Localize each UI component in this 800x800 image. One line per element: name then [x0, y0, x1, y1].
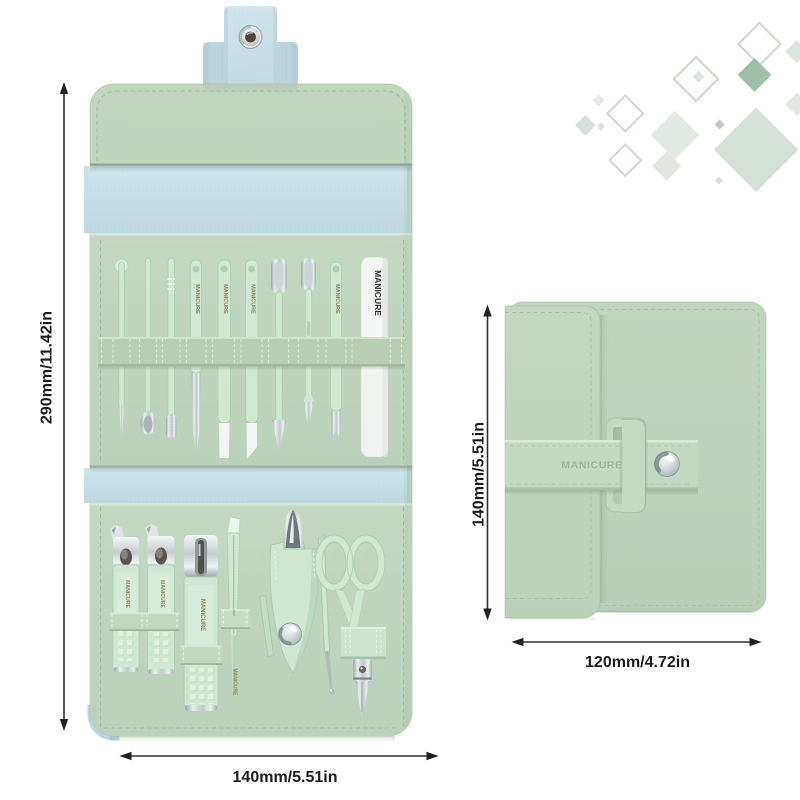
svg-text:MANICURE: MANICURE: [334, 284, 340, 314]
svg-text:MANICURE: MANICURE: [250, 284, 256, 314]
svg-text:140mm/5.51in: 140mm/5.51in: [471, 422, 488, 527]
svg-text:MANICURE: MANICURE: [194, 284, 200, 314]
svg-text:MANICURE: MANICURE: [124, 580, 130, 608]
svg-text:120mm/4.72in: 120mm/4.72in: [585, 654, 690, 671]
svg-text:MANICURE: MANICURE: [232, 669, 238, 697]
svg-text:MANICURE: MANICURE: [199, 599, 205, 631]
svg-text:MANICURE: MANICURE: [561, 460, 622, 472]
svg-text:290mm/11.42in: 290mm/11.42in: [39, 311, 56, 424]
svg-text:140mm/5.51in: 140mm/5.51in: [233, 769, 338, 786]
svg-text:MANICURE: MANICURE: [159, 580, 165, 608]
svg-text:MANICURE: MANICURE: [222, 284, 228, 314]
svg-text:MANICURE: MANICURE: [373, 270, 383, 316]
